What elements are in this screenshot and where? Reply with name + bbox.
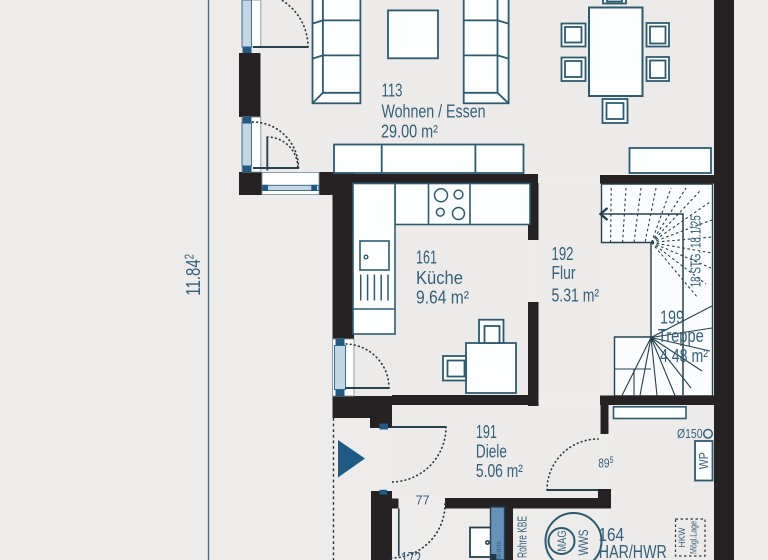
svg-text:Mögl.Lage: Mögl.Lage: [689, 521, 700, 554]
svg-text:5.06 m²: 5.06 m²: [476, 461, 523, 481]
svg-text:11.842: 11.842: [182, 254, 205, 296]
svg-text:161: 161: [416, 248, 437, 268]
svg-text:Wohnen / Essen: Wohnen / Essen: [382, 102, 486, 122]
svg-text:199: 199: [660, 307, 684, 327]
svg-text:191: 191: [476, 422, 497, 442]
svg-text:Ø150: Ø150: [677, 426, 703, 441]
svg-text:9.64 m²: 9.64 m²: [416, 288, 469, 308]
svg-text:WP: WP: [696, 452, 711, 469]
svg-text:192: 192: [552, 244, 574, 264]
svg-text:4.48 m²: 4.48 m²: [660, 346, 708, 366]
svg-text:Diele: Diele: [476, 442, 507, 462]
svg-text:5.31 m²: 5.31 m²: [552, 285, 600, 305]
svg-text:172: 172: [401, 549, 421, 560]
svg-text:Rohre KBE: Rohre KBE: [516, 516, 530, 558]
svg-text:Küche: Küche: [416, 268, 463, 288]
svg-text:Flur: Flur: [552, 263, 576, 283]
svg-text:HAR/HWR: HAR/HWR: [599, 542, 667, 560]
svg-text:HKW: HKW: [677, 527, 688, 547]
svg-text:77: 77: [416, 493, 430, 508]
svg-text:Treppe: Treppe: [658, 326, 704, 346]
svg-text:WWS: WWS: [576, 530, 591, 556]
svg-text:29.00 m²: 29.00 m²: [381, 122, 438, 142]
svg-text:113: 113: [382, 81, 403, 101]
svg-text:18 STG. 18.1/25: 18 STG. 18.1/25: [689, 215, 705, 287]
svg-text:abwärts: abwärts: [494, 541, 503, 560]
svg-text:MAG: MAG: [555, 531, 569, 552]
